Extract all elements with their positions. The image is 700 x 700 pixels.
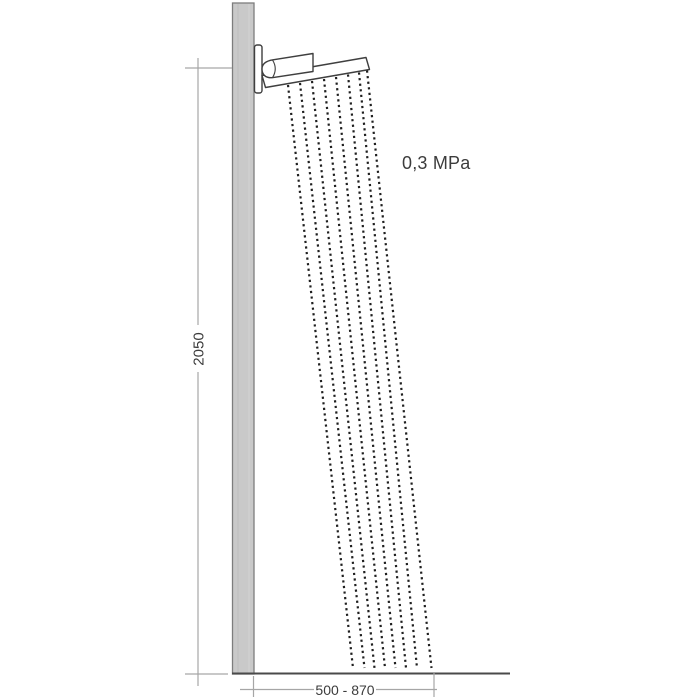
shower-fixture bbox=[255, 45, 370, 93]
pressure-label: 0,3 MPa bbox=[402, 153, 470, 174]
spray-dimension-diagram: 0,3 MPa 2050 500 - 870 bbox=[0, 0, 700, 700]
wall bbox=[233, 3, 255, 674]
height-dimension-label: 2050 bbox=[191, 332, 208, 365]
reach-dimension-label: 500 - 870 bbox=[315, 682, 374, 698]
wall-plate bbox=[255, 45, 263, 93]
diagram-canvas bbox=[0, 0, 700, 700]
